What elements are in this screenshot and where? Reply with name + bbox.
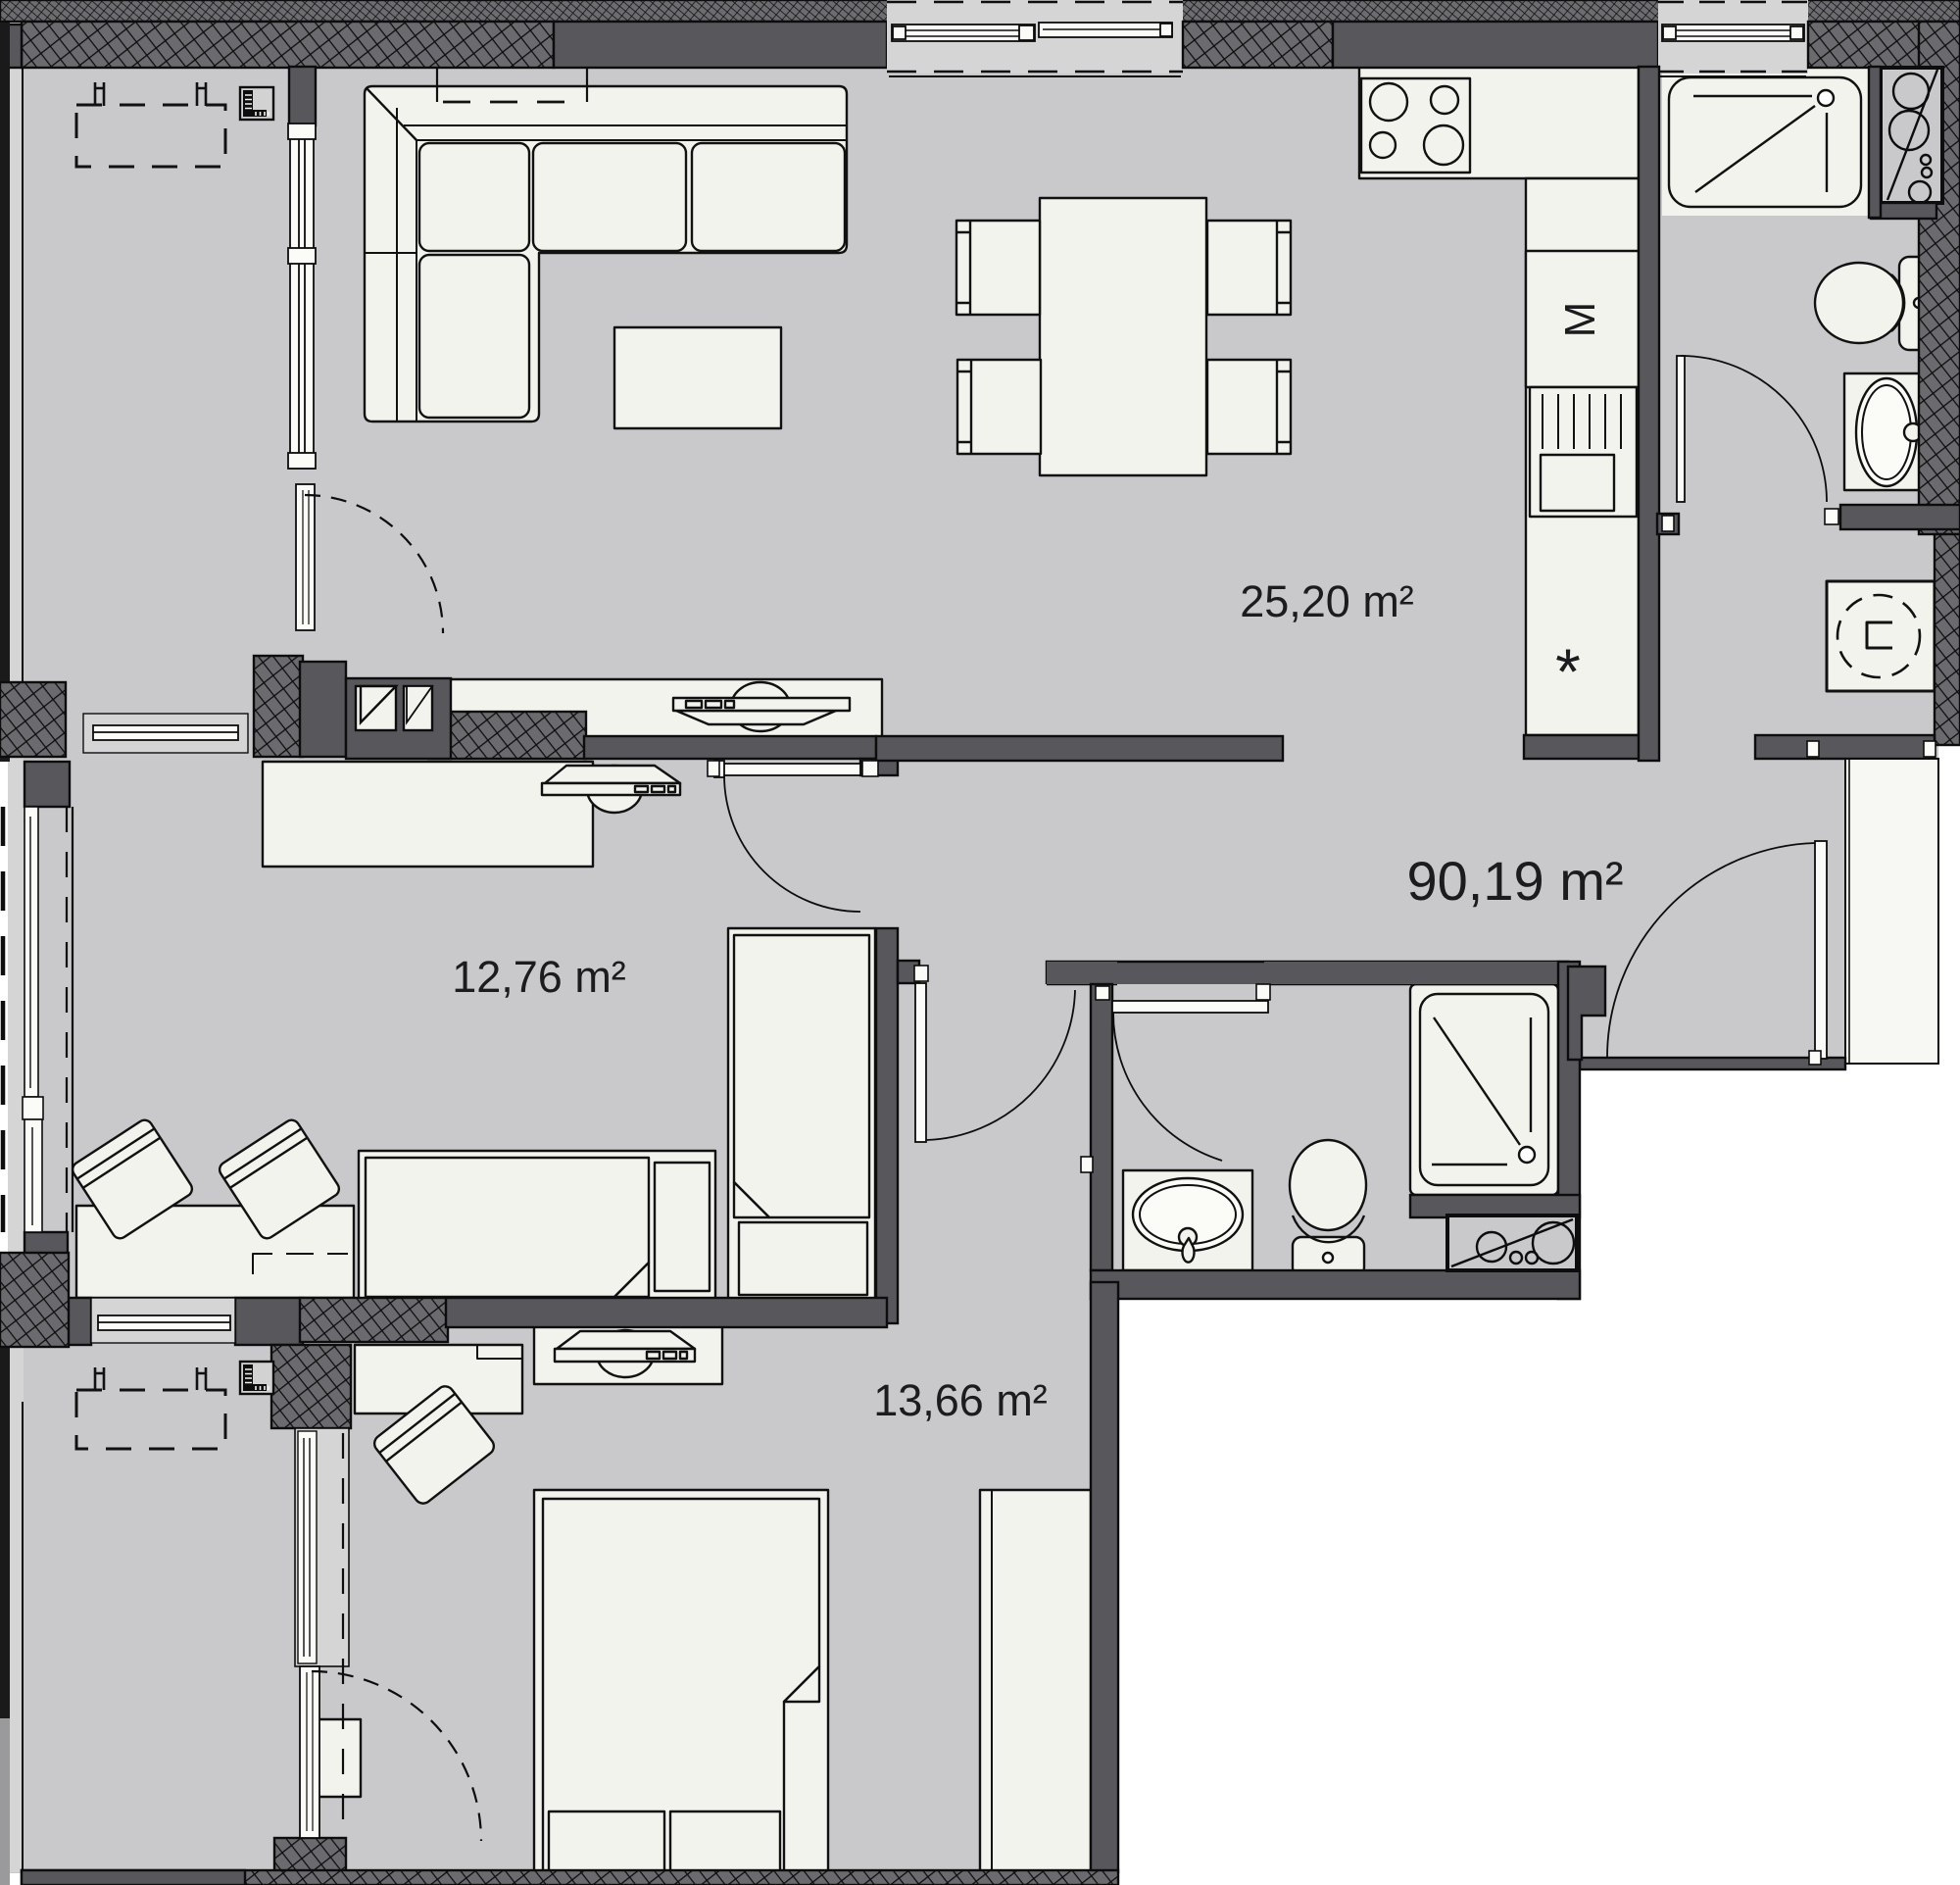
svg-text:25,20 m²: 25,20 m²	[1240, 576, 1414, 626]
svg-text:90,19 m²: 90,19 m²	[1407, 850, 1624, 912]
svg-text:*: *	[1555, 635, 1581, 708]
svg-text:12,76 m²: 12,76 m²	[452, 952, 626, 1002]
svg-text:M: M	[1556, 302, 1604, 338]
svg-text:13,66 m²: 13,66 m²	[873, 1375, 1048, 1425]
